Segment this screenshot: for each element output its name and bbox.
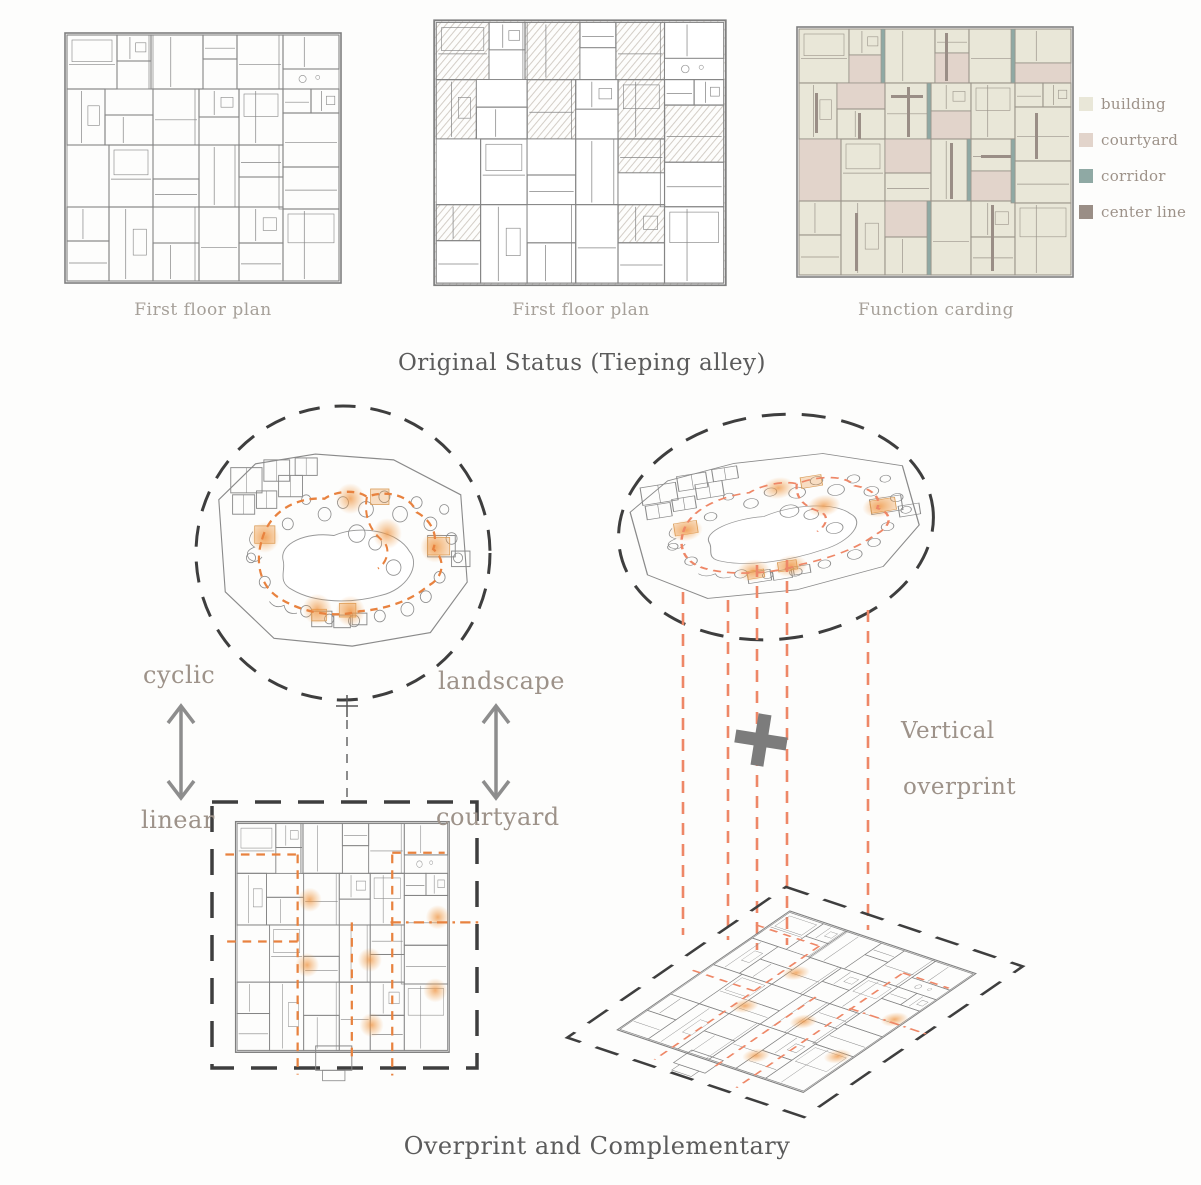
vertical-projection-lines (683, 560, 868, 950)
first-floor-plan-drawing-2 (434, 20, 726, 285)
legend-label: center line (1101, 203, 1186, 221)
label-vertical: Vertical (901, 718, 995, 744)
corridor-swatch (1079, 169, 1093, 183)
plan1-caption: First floor plan (63, 300, 343, 320)
label-courtyard: courtyard (436, 803, 560, 831)
diagram-canvas (0, 0, 1201, 1185)
building-swatch (1079, 97, 1093, 111)
section-title-overprint: Overprint and Complementary (197, 1132, 997, 1160)
section-title-original-status: Original Status (Tieping alley) (182, 350, 982, 376)
diagram-page: First floor plan First floor plan Functi… (0, 0, 1201, 1185)
linear-courtyard-square-group (212, 802, 479, 1081)
isometric-courtyard-plan-group (567, 887, 1024, 1118)
plan3-caption: Function carding (795, 300, 1077, 320)
legend-label: building (1101, 95, 1166, 113)
label-overprint: overprint (903, 774, 1016, 800)
tilted-garden-ellipse-group (606, 397, 947, 658)
cyclic-landscape-circle-group (196, 406, 490, 799)
legend-item-center-line: center line (1079, 194, 1199, 230)
function-carding-drawing (797, 27, 1073, 277)
label-linear: linear (141, 806, 215, 834)
legend-item-courtyard: courtyard (1079, 122, 1199, 158)
label-landscape: landscape (438, 667, 565, 695)
legend-label: corridor (1101, 167, 1166, 185)
label-cyclic: cyclic (143, 661, 215, 689)
legend-item-corridor: corridor (1079, 158, 1199, 194)
relation-arrows (168, 706, 509, 798)
plan2-caption: First floor plan (432, 300, 730, 320)
plus-symbol (731, 710, 790, 769)
legend-item-building: building (1079, 86, 1199, 122)
legend-label: courtyard (1101, 131, 1178, 149)
legend: building courtyard corridor center line (1079, 86, 1199, 230)
first-floor-plan-drawing-1 (65, 33, 341, 283)
courtyard-swatch (1079, 133, 1093, 147)
center-line-swatch (1079, 205, 1093, 219)
